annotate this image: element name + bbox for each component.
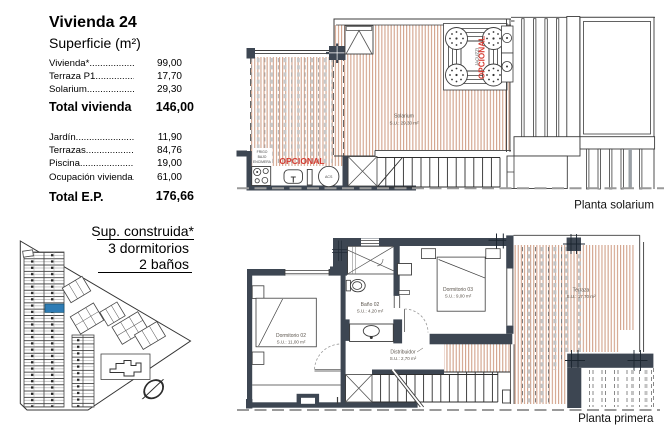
svg-text:OPCIONAL: OPCIONAL [279,156,324,166]
svg-text:Terraza: Terraza [573,288,590,294]
svg-text:∅: ∅ [139,374,165,405]
svg-text:OPCIONAL: OPCIONAL [478,36,487,79]
svg-text:Planta primera: Planta primera [578,412,654,425]
svg-text:ACS: ACS [325,175,333,179]
svg-text:Dormitorio 02: Dormitorio 02 [276,333,306,339]
svg-text:Dormitorio 03: Dormitorio 03 [443,287,473,293]
svg-text:S.U.: 17,70 m²: S.U.: 17,70 m² [566,294,596,299]
svg-text:S.U.: 2,70 m²: S.U.: 2,70 m² [390,356,417,361]
svg-text:S.U.: 11,00 m²: S.U.: 11,00 m² [277,340,306,345]
svg-text:ENCIMERA: ENCIMERA [253,160,272,164]
svg-text:Baño 02: Baño 02 [361,302,380,308]
svg-text:Distribuidor: Distribuidor [390,350,416,356]
svg-text:Planta solarium: Planta solarium [574,199,654,212]
svg-text:Solarium: Solarium [394,114,414,120]
svg-text:BAJO: BAJO [258,155,267,159]
svg-text:S.U.: 29,30 m²: S.U.: 29,30 m² [389,121,419,126]
svg-text:S.U.: 4,20 m²: S.U.: 4,20 m² [357,309,384,314]
svg-text:FRIGO: FRIGO [257,150,268,154]
svg-text:S.U.: 9,00 m²: S.U.: 9,00 m² [445,294,472,299]
